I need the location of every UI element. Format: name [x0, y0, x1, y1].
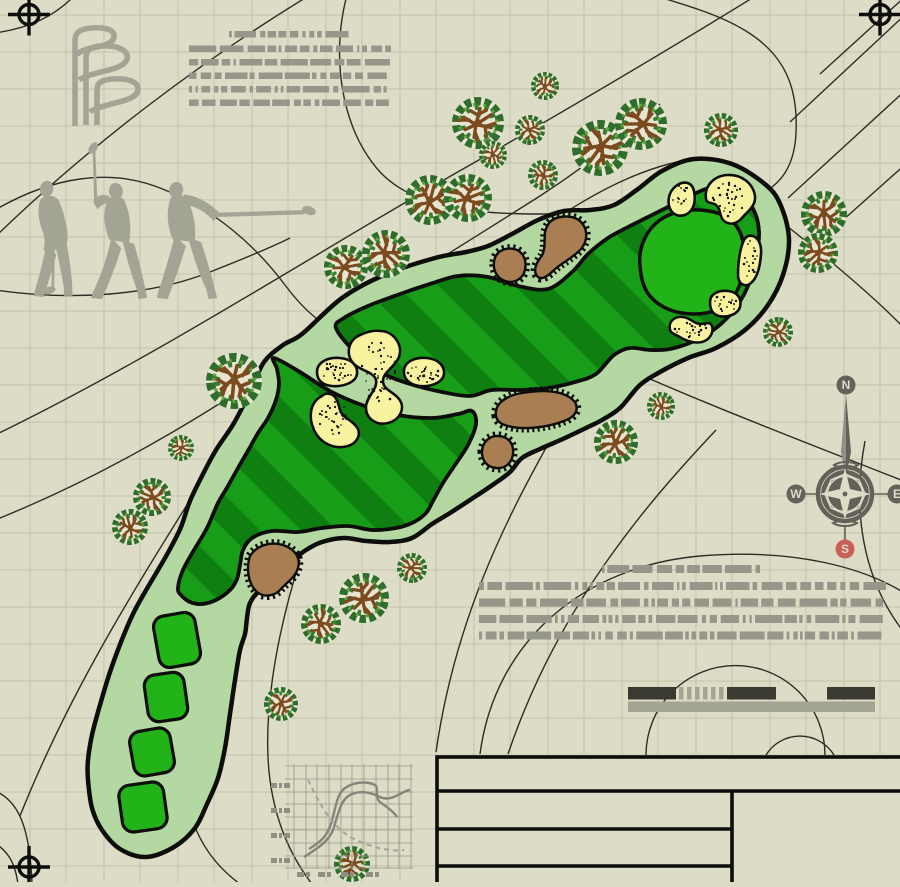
svg-text:W: W — [790, 487, 802, 501]
svg-text:S: S — [841, 542, 849, 556]
svg-text:E: E — [893, 487, 900, 501]
svg-text:N: N — [842, 378, 851, 392]
